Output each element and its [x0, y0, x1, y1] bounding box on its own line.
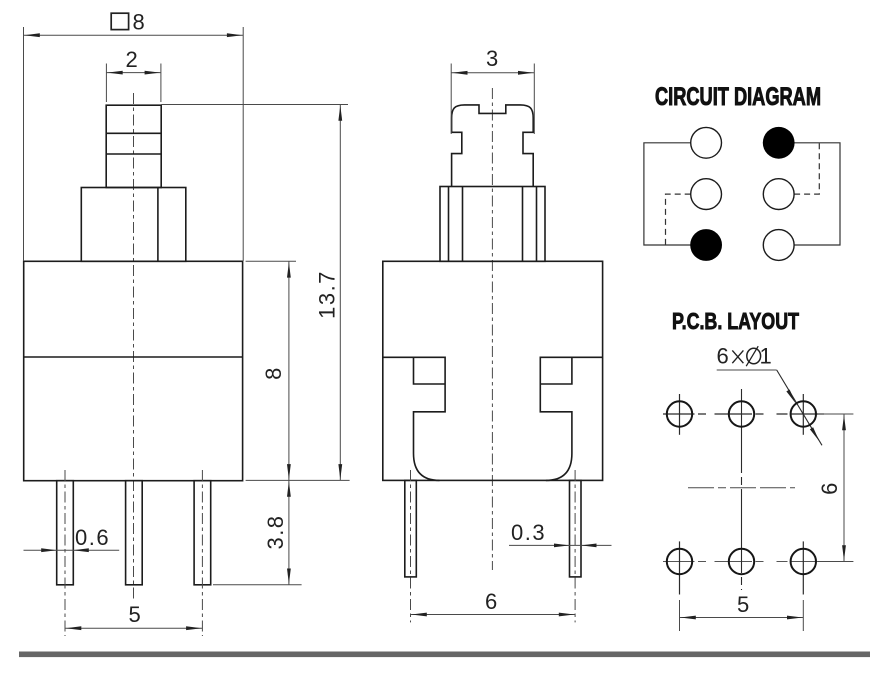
- svg-text:8: 8: [261, 366, 286, 380]
- svg-text:5: 5: [129, 602, 143, 627]
- svg-text:5: 5: [737, 592, 751, 617]
- svg-text:6: 6: [485, 589, 499, 614]
- svg-text:8: 8: [133, 10, 147, 35]
- svg-text:13.7: 13.7: [315, 270, 340, 319]
- svg-text:P.C.B. LAYOUT: P.C.B. LAYOUT: [672, 308, 799, 334]
- svg-text:3: 3: [486, 46, 500, 71]
- svg-text:0.6: 0.6: [75, 525, 110, 550]
- svg-text:6: 6: [717, 344, 731, 369]
- svg-text:1: 1: [760, 344, 774, 369]
- svg-text:6: 6: [817, 481, 842, 495]
- svg-text:2: 2: [126, 47, 140, 72]
- svg-text:CIRCUIT DIAGRAM: CIRCUIT DIAGRAM: [655, 83, 821, 111]
- svg-text:3.8: 3.8: [263, 514, 288, 549]
- svg-text:0.3: 0.3: [511, 520, 546, 545]
